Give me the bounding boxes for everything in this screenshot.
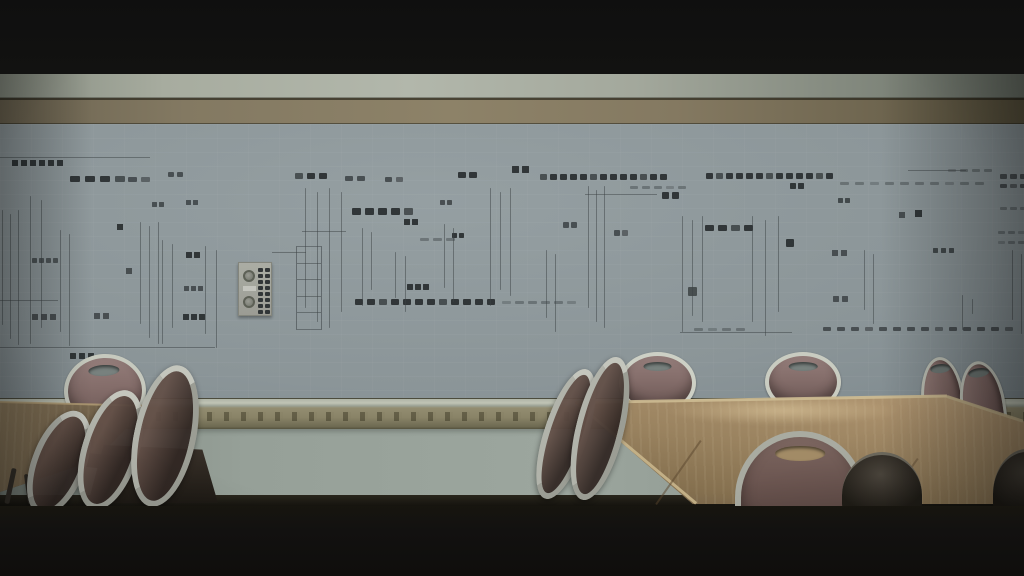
chair-handle-cutout [789, 362, 818, 371]
wood-beam [0, 98, 1024, 124]
chair-handle-cutout [775, 446, 825, 460]
film-frame [0, 0, 1024, 576]
tiled-wall [0, 124, 1024, 400]
chair-handle-cutout [929, 363, 950, 374]
ceiling-strip [0, 74, 1024, 98]
letterbox-bar-top [0, 0, 1024, 74]
chair-handle-cutout [643, 362, 672, 371]
chair-handle-cutout [967, 367, 989, 379]
letterbox-bar-bottom [0, 506, 1024, 576]
chair-handle-cutout [88, 364, 120, 377]
